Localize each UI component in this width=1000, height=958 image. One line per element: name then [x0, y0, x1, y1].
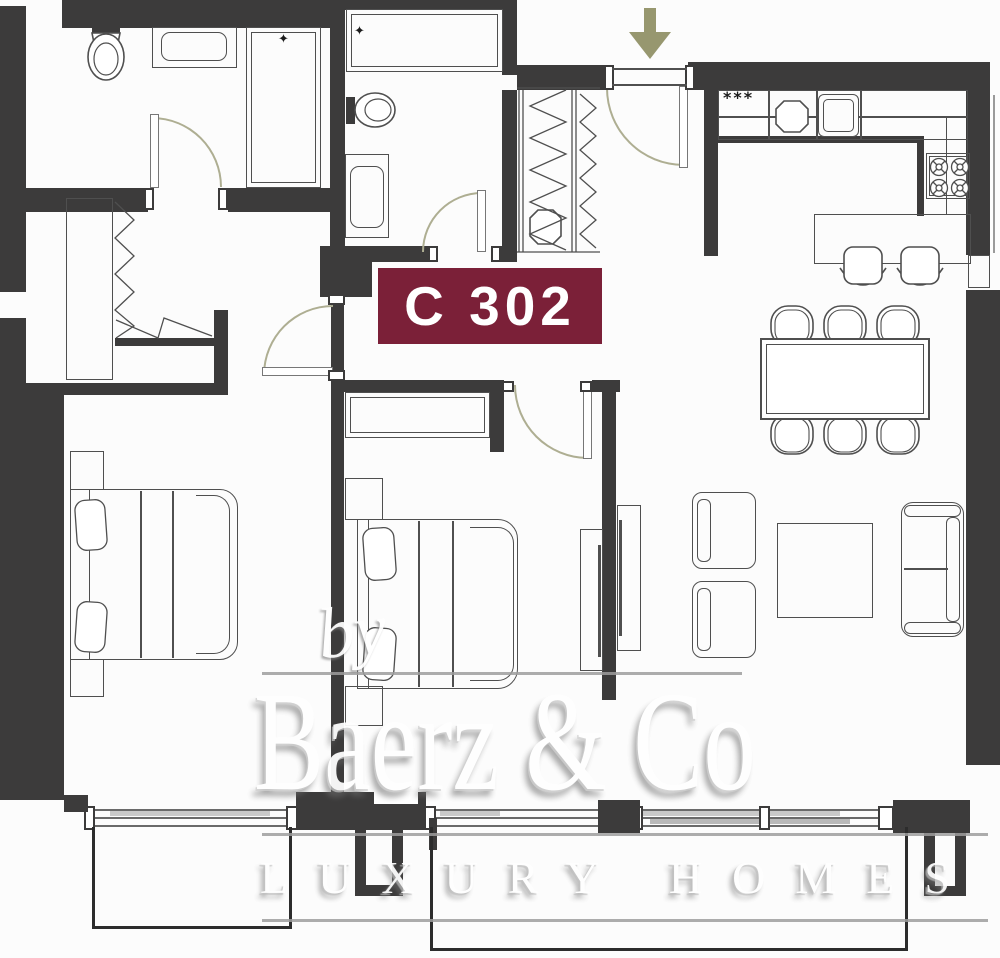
- door-leaf: [150, 114, 159, 188]
- door-frame-post: [144, 188, 154, 210]
- door-leaf: [583, 383, 592, 459]
- toilet-icon: [346, 93, 395, 127]
- watermark-tagline: LUXURY HOMES: [260, 851, 980, 904]
- door-leaf: [262, 367, 333, 376]
- arrow-head: [629, 32, 671, 59]
- dining-table-inner: [766, 344, 924, 414]
- wardrobe-rail-icon: [115, 202, 212, 338]
- entry-lintel-line: [612, 68, 687, 70]
- door-frame-post: [218, 188, 228, 210]
- watermark-rule: [262, 833, 988, 836]
- door-frame-post: [328, 294, 345, 305]
- appliance-icon: [776, 101, 808, 132]
- floor-plan: ✦ ✦ *** C 302 by Baerz & Co LUXURY HOMES: [0, 0, 1000, 958]
- dining-chair: [877, 414, 919, 454]
- door-frame-post: [328, 370, 345, 381]
- wardrobe-rail-icon: [572, 90, 596, 252]
- entry-lintel-line: [612, 84, 687, 86]
- watermark-rule: [262, 919, 988, 922]
- shower-diamond-icon: ✦: [354, 24, 365, 39]
- hob-burners-icon: [931, 159, 969, 197]
- door-leaf: [679, 86, 688, 168]
- hob-symbol: ***: [723, 88, 754, 107]
- bar-stool: [897, 247, 943, 285]
- dining-chair: [771, 414, 813, 454]
- door-frame-post: [491, 246, 501, 262]
- arrow-shaft: [644, 8, 656, 34]
- toilet-icon: [88, 24, 124, 80]
- door-frame-post: [580, 381, 592, 392]
- shower-diamond-icon: ✦: [278, 32, 289, 47]
- door-leaf: [477, 190, 486, 252]
- door-frame-post: [502, 381, 514, 392]
- door-frame-post: [428, 246, 438, 262]
- unit-label: C 302: [378, 268, 602, 344]
- bar-stool: [840, 247, 886, 285]
- dining-chair: [824, 414, 866, 454]
- watermark-brand: Baerz & Co: [254, 670, 756, 812]
